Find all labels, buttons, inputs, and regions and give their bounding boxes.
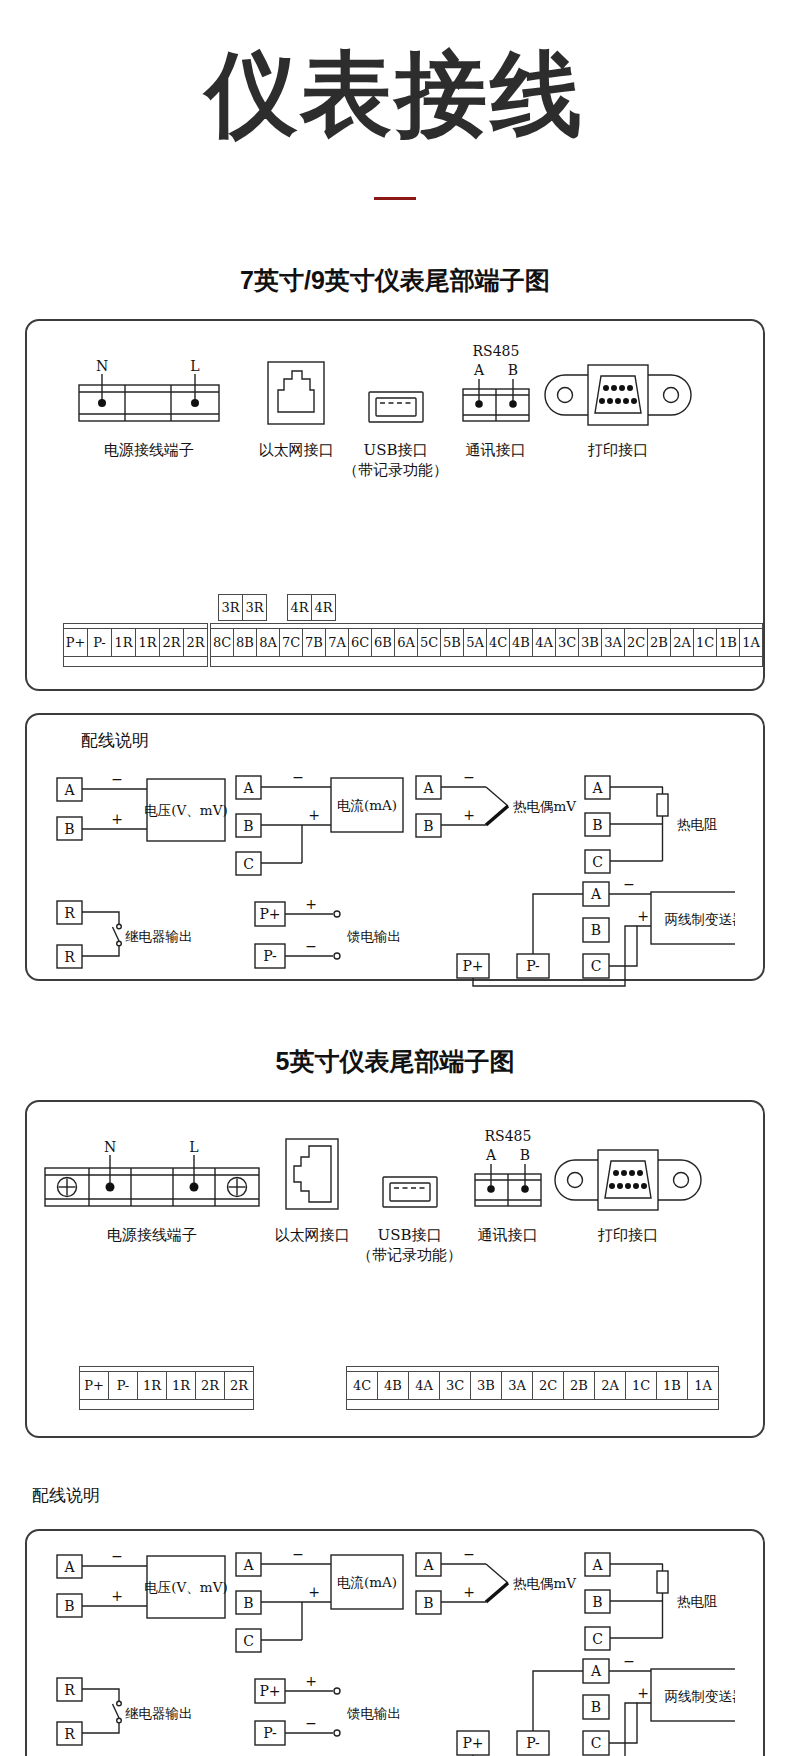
- terminal-cell: 4C: [347, 1372, 378, 1399]
- terminal-cell: 6A: [395, 629, 418, 656]
- terminal-b: B: [592, 817, 602, 833]
- relay-pair-4r: 4R4R: [287, 594, 336, 621]
- connector-row-7inch: N L 电源接线端子: [27, 339, 763, 481]
- terminal-p-plus: P+: [259, 1683, 280, 1699]
- terminal-p-minus: P-: [263, 1725, 277, 1741]
- terminal-block-right: 4C4B4A3C3B3A2C2B2A1C1B1A: [346, 1366, 719, 1410]
- power-terminal-block: N L: [37, 1122, 267, 1245]
- wiring-diagram-transmitter: A B C P+ P- − + 两线制变送器: [455, 880, 735, 992]
- plus-sign: +: [305, 1677, 317, 1689]
- terminal-cell: 2A: [595, 1372, 626, 1399]
- power-terminal-icon: N L: [37, 1122, 267, 1212]
- terminal-r1: R: [64, 1682, 75, 1698]
- terminal-cell: 1R: [167, 1372, 196, 1399]
- usb-caption-line2: （带记录功能）: [343, 460, 448, 480]
- minus-sign: −: [292, 774, 304, 785]
- relay-pairs-row: 3R3R 4R4R: [218, 594, 763, 621]
- usb-port-block: USB接口 （带记录功能）: [357, 1122, 462, 1266]
- terminal-cell: 5C: [418, 629, 441, 656]
- wiring-diagram-feed: P+ P- + − 馈电输出: [253, 1677, 415, 1749]
- terminal-p-minus: P-: [526, 958, 540, 974]
- pin-l-label: L: [190, 358, 199, 374]
- terminal-cell: 2R: [160, 629, 184, 656]
- terminal-r2: R: [64, 1726, 75, 1742]
- terminal-cell: 8B: [234, 629, 257, 656]
- terminal-c: C: [243, 856, 254, 872]
- minus-sign: −: [623, 1657, 635, 1669]
- usb-icon: [381, 1122, 439, 1212]
- relay-label: 继电器输出: [125, 1705, 193, 1721]
- terminal-b: B: [591, 1699, 601, 1715]
- wiring-diagram-current: A B C − + 电流(mA): [234, 1551, 409, 1653]
- terminal-a: A: [63, 1559, 75, 1575]
- terminal-block-left: P+P-1R1R2R2R: [79, 1366, 254, 1410]
- terminal-cell: 4A: [533, 629, 556, 656]
- main-terminal-row-5inch: P+P-1R1R2R2R 4C4B4A3C3B3A2C2B2A1C1B1A: [79, 1366, 763, 1410]
- minus-sign: −: [463, 1551, 475, 1562]
- terminal-cell: P+: [80, 1372, 109, 1399]
- panel-wiring-notes-5inch: A B − + 电压(V、mV) A B C − + 电流(mA): [25, 1529, 765, 1756]
- terminal-cell: 4B: [510, 629, 533, 656]
- page-title: 仪表接线: [0, 46, 790, 143]
- terminal-cell: 4R: [288, 595, 312, 620]
- minus-sign: −: [463, 774, 475, 785]
- comm-caption: 通讯接口: [478, 1225, 538, 1245]
- terminal-a: A: [243, 780, 255, 796]
- terminal-r1: R: [64, 905, 75, 921]
- terminal-cell: 8C: [211, 629, 234, 656]
- pin-n-label: N: [104, 1139, 116, 1155]
- relay-label: 继电器输出: [125, 928, 193, 944]
- voltage-label: 电压(V、mV): [144, 1579, 227, 1595]
- terminal-block-left: P+P-1R1R2R2R: [63, 623, 208, 667]
- power-terminal-block: N L 电源接线端子: [49, 339, 249, 460]
- voltage-label: 电压(V、mV): [144, 802, 227, 818]
- db9-printer-icon: [543, 339, 693, 427]
- wiring-row-1: A B − + 电压(V、mV) A B C − + 电流(mA): [55, 1551, 735, 1653]
- ethernet-icon: [265, 339, 327, 427]
- terminal-cell: 2B: [564, 1372, 595, 1399]
- terminal-cell: 3B: [471, 1372, 502, 1399]
- rs485-terminal-icon: RS485 A B: [458, 339, 534, 427]
- terminal-cell: 3C: [440, 1372, 471, 1399]
- terminal-block-right: 8C8B8A7C7B7A6C6B6A5C5B5A4C4B4A3C3B3A2C2B…: [210, 623, 763, 667]
- wiring-row-2: R R 继电器输出 P+ P- + − 馈电输出: [55, 1657, 735, 1756]
- terminal-cell: 2C: [533, 1372, 564, 1399]
- plus-sign: +: [305, 900, 317, 912]
- terminal-cell: 1B: [657, 1372, 688, 1399]
- usb-caption-line1: USB接口: [343, 440, 448, 460]
- usb-caption-line2: （带记录功能）: [357, 1245, 462, 1265]
- terminal-b: B: [64, 1598, 74, 1614]
- terminal-cell: 3B: [579, 629, 602, 656]
- wiring-diagram-thermocouple: A B − + 热电偶mV: [414, 774, 579, 876]
- terminal-c: C: [243, 1633, 254, 1649]
- pin-n-label: N: [96, 358, 108, 374]
- terminal-block-base: [80, 1399, 253, 1409]
- terminal-cell: 2C: [625, 629, 648, 656]
- comm-port-block: RS485 A B 通讯接口: [458, 339, 534, 460]
- terminal-p-minus: P-: [263, 948, 277, 964]
- terminal-cell: 4B: [378, 1372, 409, 1399]
- terminal-a: A: [591, 1557, 603, 1573]
- section-heading-5inch: 5英寸仪表尾部端子图: [0, 1045, 790, 1078]
- wiring-diagram-feed: P+ P- + − 馈电输出: [253, 900, 415, 972]
- terminal-block-base: [347, 1399, 718, 1409]
- minus-sign: −: [305, 1715, 317, 1731]
- terminal-cell: P+: [64, 629, 88, 656]
- comm-caption: 通讯接口: [466, 440, 526, 460]
- printer-caption: 打印接口: [588, 440, 648, 460]
- terminal-r2: R: [64, 949, 75, 965]
- terminal-b: B: [244, 1595, 254, 1611]
- red-accent-divider: [374, 197, 416, 200]
- terminal-cell: 4R: [312, 595, 335, 620]
- minus-sign: −: [111, 1551, 123, 1564]
- terminal-cell: 1R: [136, 629, 160, 656]
- section-heading-7inch: 7英寸/9英寸仪表尾部端子图: [0, 264, 790, 297]
- terminal-cell: 2A: [671, 629, 694, 656]
- terminal-cell: 1B: [717, 629, 740, 656]
- relay-pair-3r: 3R3R: [218, 594, 267, 621]
- minus-sign: −: [623, 880, 635, 892]
- plus-sign: +: [637, 1685, 649, 1701]
- terminal-a: A: [422, 1557, 434, 1573]
- current-label: 电流(mA): [337, 797, 397, 813]
- terminal-c: C: [592, 1631, 603, 1647]
- terminal-cell: 2R: [225, 1372, 253, 1399]
- feed-label: 馈电输出: [346, 1705, 401, 1721]
- plus-sign: +: [111, 1588, 123, 1604]
- terminal-cell: 1A: [688, 1372, 718, 1399]
- terminal-b: B: [592, 1594, 602, 1610]
- usb-icon: [367, 339, 425, 427]
- plus-sign: +: [308, 807, 320, 823]
- terminal-a: A: [422, 780, 434, 796]
- pin-a-label: A: [472, 362, 484, 378]
- rtd-label: 热电阻: [677, 1593, 718, 1609]
- rs485-terminal-icon: RS485 A B: [470, 1122, 546, 1212]
- terminal-cell: 7C: [280, 629, 303, 656]
- terminal-cell: P-: [88, 629, 112, 656]
- usb-caption: USB接口 （带记录功能）: [357, 1225, 462, 1266]
- page: 仪表接线 7英寸/9英寸仪表尾部端子图 N L: [0, 0, 790, 1756]
- terminal-a: A: [590, 886, 602, 902]
- terminal-cell: 1C: [626, 1372, 657, 1399]
- terminal-cell: 8A: [257, 629, 280, 656]
- terminal-b: B: [591, 922, 601, 938]
- plus-sign: +: [308, 1584, 320, 1600]
- terminal-b: B: [244, 818, 254, 834]
- terminal-p-plus: P+: [259, 906, 280, 922]
- power-terminal-icon: N L: [49, 339, 249, 427]
- terminal-b: B: [423, 1595, 433, 1611]
- terminal-p-minus: P-: [526, 1735, 540, 1751]
- terminal-a: A: [63, 782, 75, 798]
- printer-caption: 打印接口: [598, 1225, 658, 1245]
- wiring-heading-5inch: 配线说明: [32, 1484, 790, 1507]
- ethernet-port-block: 以太网接口: [275, 1122, 350, 1245]
- plus-sign: +: [637, 908, 649, 924]
- wiring-diagram-thermocouple: A B − + 热电偶mV: [414, 1551, 579, 1653]
- usb-port-block: USB接口 （带记录功能）: [343, 339, 448, 481]
- terminal-cell: 2R: [196, 1372, 225, 1399]
- wiring-diagram-relay: R R 继电器输出: [55, 1674, 213, 1752]
- terminal-strips-5inch: P+P-1R1R2R2R 4C4B4A3C3B3A2C2B2A1C1B1A: [79, 1366, 763, 1410]
- terminal-cell: 6B: [372, 629, 395, 656]
- current-label: 电流(mA): [337, 1574, 397, 1590]
- wiring-row-1: A B − + 电压(V、mV) A B C − + 电流(mA): [55, 774, 735, 876]
- power-terminal-caption: 电源接线端子: [107, 1225, 197, 1245]
- terminal-cell: 3A: [502, 1372, 533, 1399]
- connector-row-5inch: N L: [27, 1122, 763, 1266]
- terminal-cell: 1A: [740, 629, 762, 656]
- pin-b-label: B: [507, 362, 517, 378]
- terminal-strips-7inch: 3R3R 4R4R P+P-1R1R2R2R 8C8B8A7C7B7A6C6B6…: [63, 594, 763, 667]
- terminal-cell: 1R: [138, 1372, 167, 1399]
- main-terminal-row-7inch: P+P-1R1R2R2R 8C8B8A7C7B7A6C6B6A5C5B5A4C4…: [63, 623, 763, 667]
- terminal-cell: 1R: [112, 629, 136, 656]
- wiring-diagram-voltage: A B − + 电压(V、mV): [55, 774, 230, 876]
- printer-port-block: 打印接口: [543, 339, 693, 460]
- terminal-cell: 3A: [602, 629, 625, 656]
- terminal-b: B: [423, 818, 433, 834]
- terminal-b: B: [64, 821, 74, 837]
- panel-wiring-notes-7inch: 配线说明 A B − + 电压(V、mV) A B C −: [25, 713, 765, 981]
- terminal-c: C: [592, 854, 603, 870]
- plus-sign: +: [463, 807, 475, 823]
- plus-sign: +: [111, 811, 123, 827]
- terminal-cell: 3C: [556, 629, 579, 656]
- terminal-p-plus: P+: [462, 1735, 483, 1751]
- wiring-heading: 配线说明: [81, 729, 735, 752]
- terminal-cell: 3R: [219, 595, 243, 620]
- transmitter-label: 两线制变送器: [665, 911, 736, 927]
- minus-sign: −: [292, 1551, 304, 1562]
- printer-port-block: 打印接口: [553, 1122, 703, 1245]
- minus-sign: −: [305, 938, 317, 954]
- usb-caption-line1: USB接口: [357, 1225, 462, 1245]
- terminal-cell: 5A: [464, 629, 487, 656]
- terminal-cell: 3R: [243, 595, 266, 620]
- comm-port-block: RS485 A B 通讯接口: [470, 1122, 546, 1245]
- plus-sign: +: [463, 1584, 475, 1600]
- terminal-cell: 7B: [303, 629, 326, 656]
- transmitter-label: 两线制变送器: [665, 1688, 736, 1704]
- terminal-a: A: [243, 1557, 255, 1573]
- terminal-a: A: [590, 1663, 602, 1679]
- panel-7inch-rear-terminals: N L 电源接线端子: [25, 319, 765, 691]
- terminal-cell: 2B: [648, 629, 671, 656]
- terminal-cell: P-: [109, 1372, 138, 1399]
- terminal-cell: 7A: [326, 629, 349, 656]
- power-terminal-caption: 电源接线端子: [104, 440, 194, 460]
- wiring-diagram-rtd: A B C 热电阻: [583, 1551, 735, 1653]
- thermocouple-label: 热电偶mV: [513, 1575, 576, 1591]
- wiring-diagram-relay: R R 继电器输出: [55, 897, 213, 975]
- usb-caption: USB接口 （带记录功能）: [343, 440, 448, 481]
- terminal-block-base: [211, 656, 762, 666]
- terminal-p-plus: P+: [462, 958, 483, 974]
- terminal-cell: 6C: [349, 629, 372, 656]
- wiring-diagram-voltage: A B − + 电压(V、mV): [55, 1551, 230, 1653]
- rtd-label: 热电阻: [677, 816, 718, 832]
- terminal-cell: 2R: [184, 629, 207, 656]
- terminal-cell: 4A: [409, 1372, 440, 1399]
- wiring-row-2: R R 继电器输出 P+ P- + − 馈电输出: [55, 880, 735, 992]
- terminal-c: C: [591, 958, 602, 974]
- thermocouple-label: 热电偶mV: [513, 798, 576, 814]
- feed-label: 馈电输出: [346, 928, 401, 944]
- terminal-cell: 1C: [694, 629, 717, 656]
- rs485-label: RS485: [472, 343, 519, 359]
- terminal-c: C: [591, 1735, 602, 1751]
- wiring-diagram-rtd: A B C 热电阻: [583, 774, 735, 876]
- pin-b-label: B: [519, 1147, 529, 1163]
- terminal-a: A: [591, 780, 603, 796]
- wiring-diagram-transmitter: A B C P+ P- − + 两线制变送器: [455, 1657, 735, 1756]
- rs485-label: RS485: [484, 1128, 531, 1144]
- ethernet-port-block: 以太网接口: [259, 339, 334, 460]
- db9-printer-icon: [553, 1122, 703, 1212]
- pin-a-label: A: [484, 1147, 496, 1163]
- panel-5inch-rear-terminals: N L: [25, 1100, 765, 1438]
- wiring-diagram-current: A B C − + 电流(mA): [234, 774, 409, 876]
- ethernet-icon: [284, 1122, 340, 1212]
- ethernet-caption: 以太网接口: [259, 440, 334, 460]
- terminal-block-base: [64, 656, 207, 666]
- terminal-cell: 4C: [487, 629, 510, 656]
- ethernet-caption: 以太网接口: [275, 1225, 350, 1245]
- pin-l-label: L: [189, 1139, 198, 1155]
- terminal-cell: 5B: [441, 629, 464, 656]
- minus-sign: −: [111, 774, 123, 787]
